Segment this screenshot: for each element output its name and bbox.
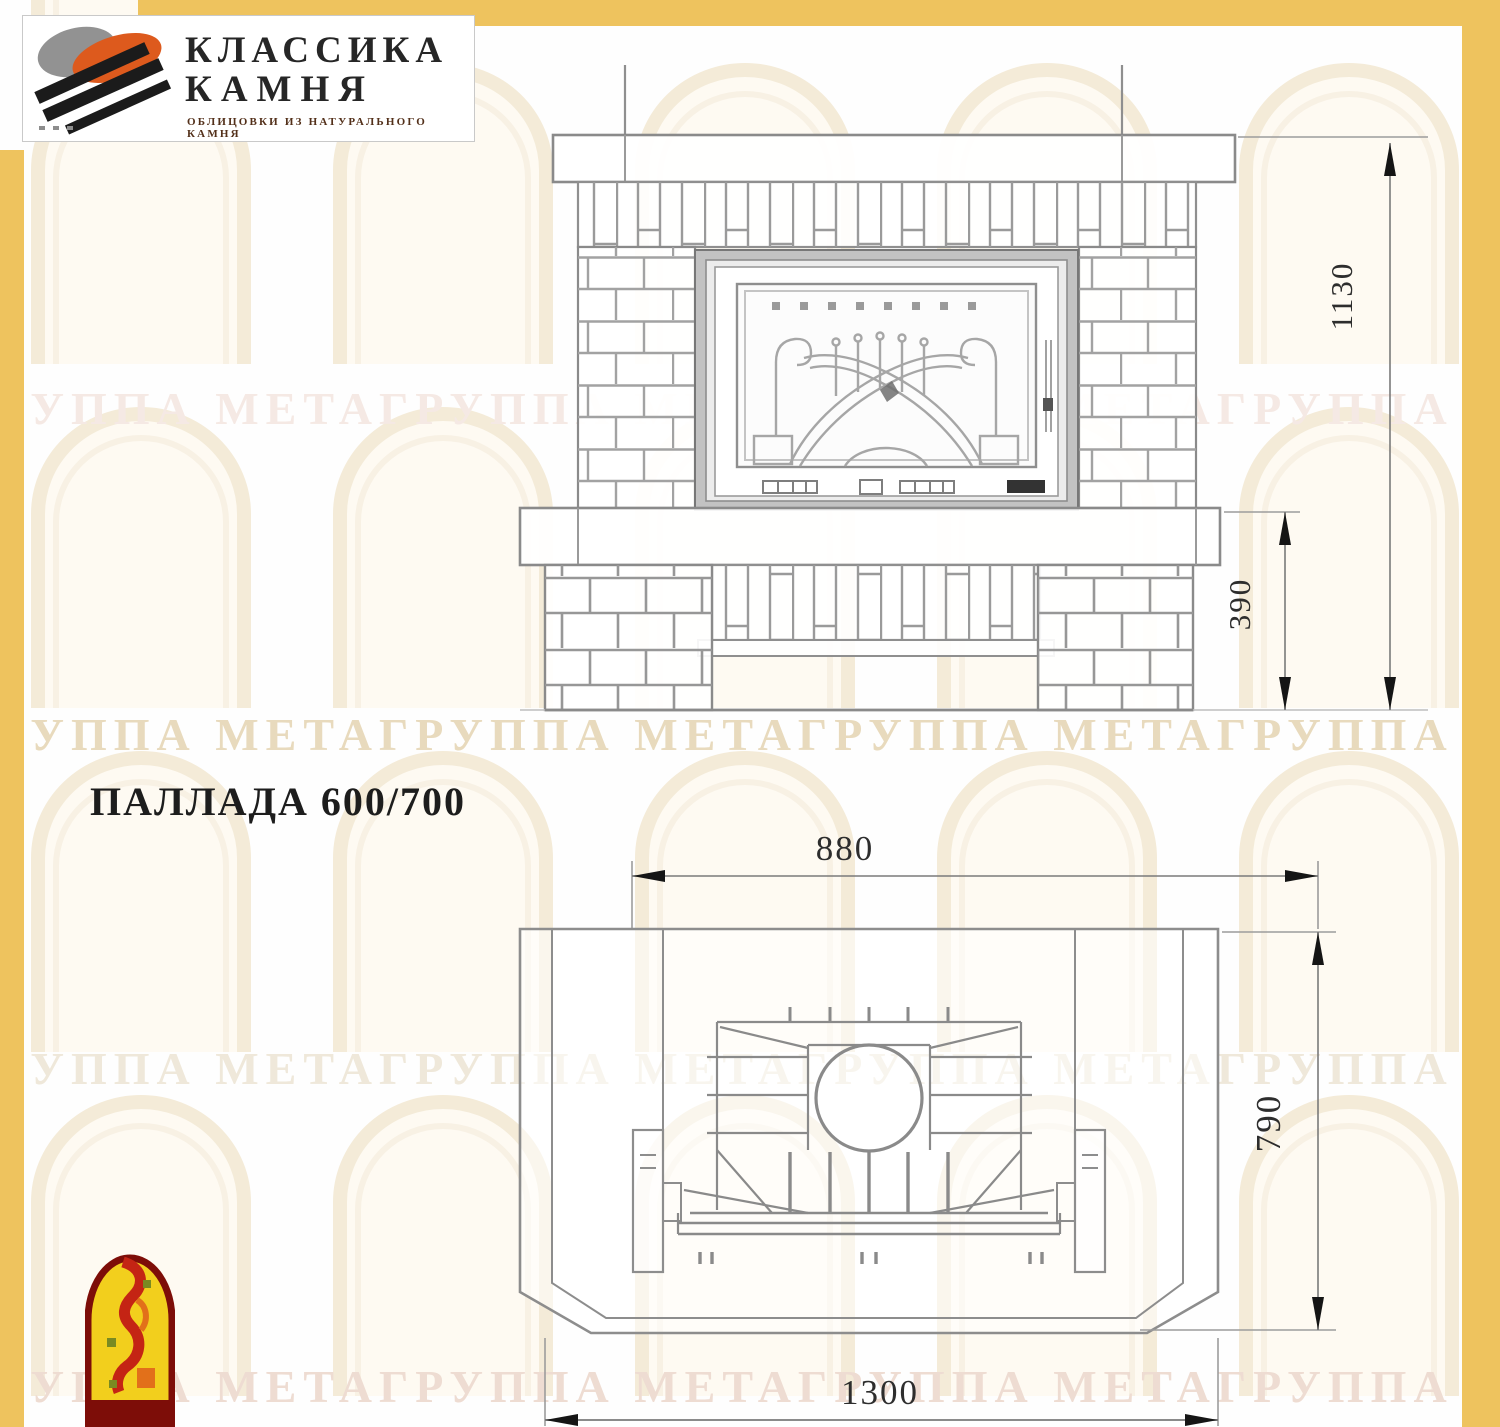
dim-label-total-height: 1130 bbox=[1324, 262, 1359, 331]
ash-handle bbox=[1007, 480, 1045, 493]
base-soldier-band bbox=[698, 565, 1054, 656]
hearth-shelf bbox=[520, 508, 1220, 565]
pedestal-right bbox=[1038, 565, 1193, 710]
front-elevation-drawing: 1130 390 bbox=[490, 50, 1470, 730]
dim-label-front-width: 1300 bbox=[841, 1373, 919, 1412]
dimension-1300: 1300 bbox=[545, 1338, 1218, 1426]
pedestal-left bbox=[545, 565, 712, 710]
stone-logo-icon bbox=[29, 20, 179, 136]
firebox-glass bbox=[737, 284, 1036, 467]
dimension-1130: 1130 bbox=[1238, 137, 1428, 710]
dim-label-top-width: 880 bbox=[816, 829, 875, 868]
top-cornice-shelf bbox=[553, 135, 1235, 182]
firebird-logo-icon bbox=[85, 1240, 175, 1427]
model-title: ПАЛЛАДА 600/700 bbox=[90, 778, 466, 825]
dimension-390: 390 bbox=[1222, 512, 1300, 710]
company-logo: КЛАССИКА КАМНЯ ОБЛИЦОВКИ ИЗ НАТУРАЛЬНОГО… bbox=[22, 15, 475, 142]
brand-name-line2: КАМНЯ bbox=[185, 71, 374, 108]
dim-label-hearth-height: 390 bbox=[1222, 578, 1257, 631]
dimension-880: 880 bbox=[632, 829, 1318, 929]
firebox-insert bbox=[695, 250, 1078, 510]
plan-view-drawing: 880 bbox=[490, 828, 1470, 1427]
niche-lintel bbox=[698, 640, 1054, 656]
plan-outline bbox=[520, 929, 1218, 1333]
scan-border-left bbox=[0, 150, 24, 1427]
scanned-drawing-page: ГРУППА МЕТАГРУППА МЕТАГРУППА МЕТАГРУППА … bbox=[0, 0, 1500, 1427]
brick-column-left bbox=[578, 247, 695, 508]
scan-border-right bbox=[1462, 0, 1500, 1427]
brand-tagline: ОБЛИЦОВКИ ИЗ НАТУРАЛЬНОГО КАМНЯ bbox=[187, 116, 474, 140]
brand-name-line1: КЛАССИКА bbox=[185, 32, 448, 69]
dim-label-depth: 790 bbox=[1249, 1094, 1288, 1153]
brick-column-right bbox=[1079, 247, 1196, 508]
soldier-course-band bbox=[578, 182, 1196, 247]
